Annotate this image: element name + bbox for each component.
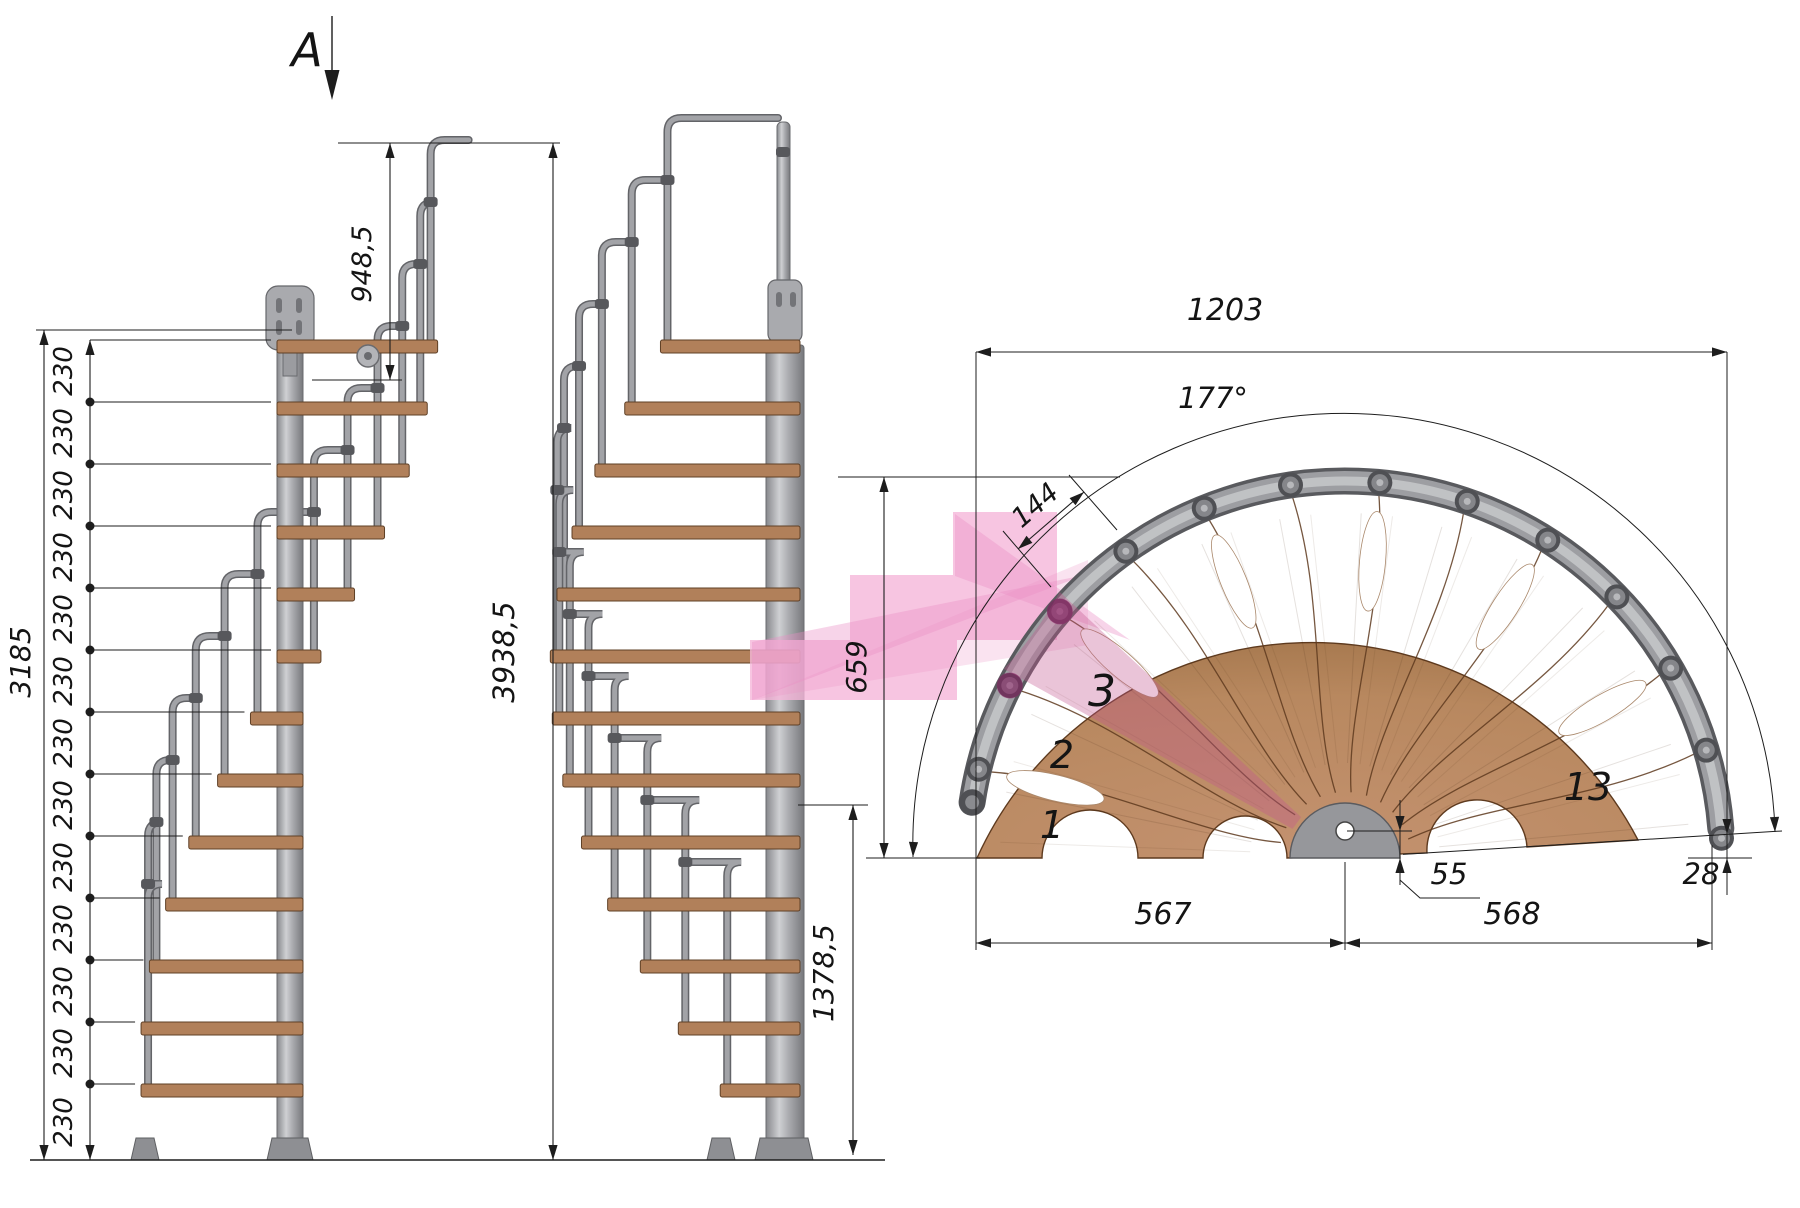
dim-module-depth: 659 (840, 640, 873, 693)
spiral-staircase-drawing: 3185230230230230230230230230230230230230… (0, 0, 1800, 1208)
dim-plan-width: 1203 (1187, 293, 1263, 328)
dim-right-half: 568 (1483, 897, 1540, 932)
dim-riser-11: 230 (49, 966, 79, 1016)
side-views-group (131, 118, 813, 1160)
technical-drawing-page: 3185230230230230230230230230230230230230… (0, 0, 1800, 1208)
dim-riser-8: 230 (49, 780, 79, 830)
dim-riser-5: 230 (49, 594, 79, 644)
dim-riser-12: 230 (49, 1028, 79, 1078)
plan-step-13: 13 (1564, 765, 1612, 809)
dim-riser-3: 230 (49, 470, 79, 520)
plan-step-2: 2 (1050, 733, 1074, 777)
dim-total-with-rail: 3938,5 (487, 601, 521, 702)
dim-riser-7: 230 (49, 718, 79, 768)
plan-view-group (959, 470, 1734, 858)
dim-riser-10: 230 (49, 904, 79, 954)
section-marker-a: A (288, 23, 322, 77)
dim-riser-9: 230 (49, 842, 79, 892)
dim-total-height: 3185 (4, 626, 37, 697)
dim-riser-6: 230 (49, 656, 79, 706)
dim-rotation-angle: 177° (1178, 381, 1248, 415)
dim-handrail-height: 948,5 (347, 225, 378, 302)
plan-step-1: 1 (1040, 803, 1064, 847)
dim-center-offset: 55 (1431, 857, 1468, 891)
dim-riser-13: 230 (49, 1097, 79, 1147)
dim-left-half: 567 (1134, 897, 1191, 932)
dim-riser-2: 230 (49, 408, 79, 458)
dim-module-height: 1378,5 (807, 924, 840, 1022)
dim-riser-4: 230 (49, 532, 79, 582)
plan-step-3: 3 (1088, 666, 1116, 717)
dim-riser-1: 230 (49, 346, 79, 396)
dim-end-offset: 28 (1683, 857, 1720, 891)
